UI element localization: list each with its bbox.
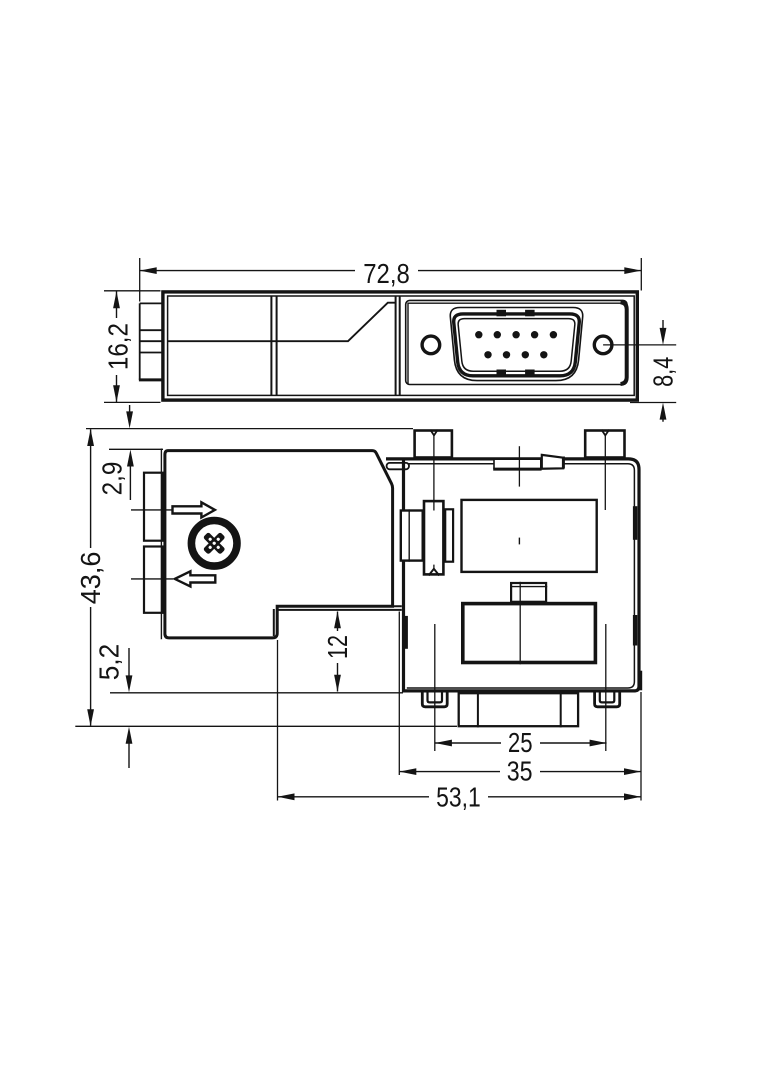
- svg-text:2,9: 2,9: [97, 462, 128, 496]
- svg-text:35: 35: [507, 755, 533, 786]
- svg-text:72,8: 72,8: [363, 258, 410, 289]
- svg-text:16,2: 16,2: [103, 323, 134, 370]
- svg-text:53,1: 53,1: [436, 782, 481, 813]
- svg-text:8,4: 8,4: [647, 357, 678, 387]
- svg-text:5,2: 5,2: [94, 644, 125, 680]
- svg-text:25: 25: [508, 727, 533, 758]
- svg-text:43,6: 43,6: [75, 552, 106, 605]
- svg-text:12: 12: [322, 635, 353, 659]
